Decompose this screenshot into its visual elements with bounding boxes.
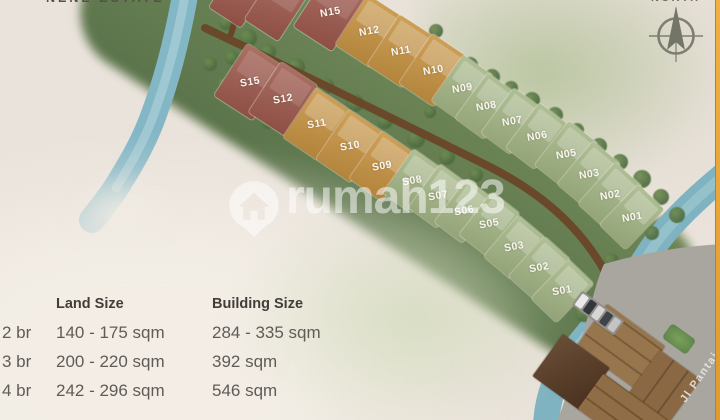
- siteplan-image: N15N12N11N10N09N08N07N06N05N03N02N01S15S…: [0, 0, 720, 420]
- rumah123-watermark: rumah123: [228, 178, 648, 248]
- row-type: 3 br: [2, 352, 56, 372]
- compass-icon: [646, 4, 706, 64]
- plot-label: N07: [501, 113, 524, 128]
- row-building-size: 284 - 335 sqm: [212, 323, 382, 343]
- plot-label: S10: [339, 138, 361, 153]
- plot-label: N10: [422, 62, 445, 77]
- row-building-size: 392 sqm: [212, 352, 382, 372]
- estate-title: NENE ESTATE: [46, 0, 165, 5]
- row-type: 4 br: [2, 381, 56, 401]
- column-header-spacer: [2, 292, 56, 316]
- column-header-building-size: Building Size: [212, 292, 382, 316]
- plot-label: S01: [551, 283, 573, 298]
- row-land-size: 140 - 175 sqm: [56, 323, 212, 343]
- row-land-size: 200 - 220 sqm: [56, 352, 212, 372]
- plot-label: N06: [526, 128, 549, 143]
- plot-label: N15: [319, 4, 342, 19]
- plot-label: N09: [451, 80, 474, 95]
- plot-label: S11: [306, 116, 327, 131]
- compass-label: NORTH: [651, 0, 700, 4]
- plot-label: S12: [272, 91, 294, 106]
- column-header-land-size: Land Size: [56, 292, 212, 316]
- row-type: 2 br: [2, 323, 56, 343]
- plot-label: S02: [528, 260, 550, 275]
- plot-label: S15: [239, 74, 261, 89]
- row-land-size: 242 - 296 sqm: [56, 381, 212, 401]
- watercolor-wash: [62, 170, 182, 260]
- row-building-size: 546 sqm: [212, 381, 382, 401]
- plot-label: N08: [475, 98, 498, 113]
- rumah123-pin-icon: [228, 178, 280, 240]
- watermark-text: rumah123: [286, 170, 505, 225]
- plot-label: N11: [390, 43, 412, 58]
- right-edge-accent: [715, 0, 720, 420]
- plot-label: N05: [555, 146, 578, 161]
- plot-label: N12: [358, 23, 381, 38]
- unit-size-table: Land Size Building Size 2 br 140 - 175 s…: [2, 289, 382, 405]
